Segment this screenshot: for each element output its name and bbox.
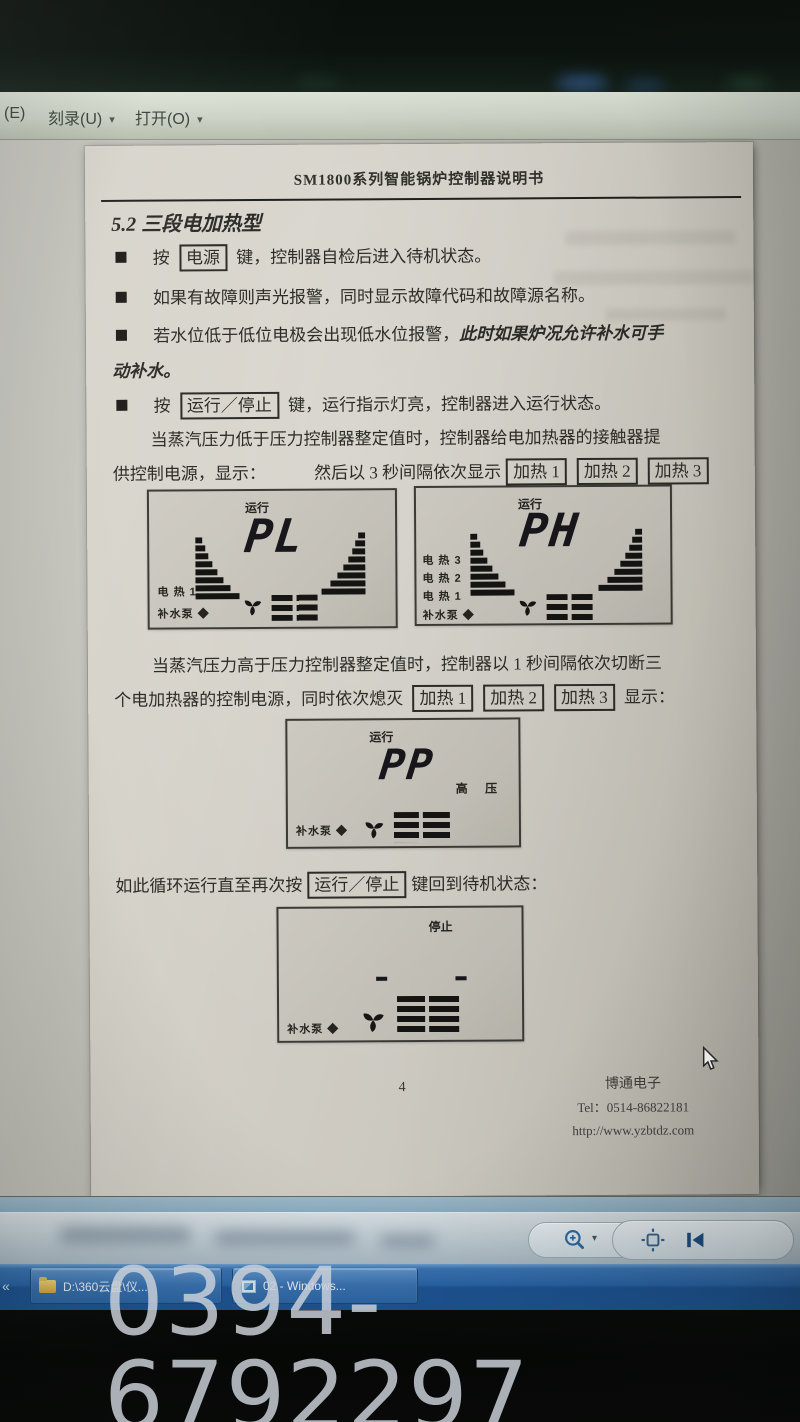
heat2-key-label: 加热 2 (577, 458, 638, 485)
heat3-key-label: 加热 3 (647, 457, 708, 484)
fan-icon (360, 814, 388, 842)
zoom-magnifier-icon[interactable] (562, 1227, 588, 1253)
menu-email[interactable]: (E) (4, 105, 25, 123)
bullet-waterlevel-line1: 若水位低于低位电极会出现低水位报警，此时如果炉况允许补水可手 (116, 319, 663, 347)
runstop-key-label: 运行／停止 (180, 392, 279, 420)
bullet-waterlevel-line2: 动补水。 (112, 356, 180, 381)
viewer-bottom-margin (0, 1196, 800, 1212)
heater3-indicator-label: 电 热 3 (422, 552, 461, 568)
lcd-panel-pl: 运行 PL 电 热 1 补水泵 ◆ (147, 488, 398, 630)
bullet-square-icon (116, 292, 127, 303)
viewer-canvas: SM1800系列智能锅炉控制器说明书 5.2 三段电加热型 按 电源 键，控制器… (0, 140, 800, 1212)
feedpump-indicator-label: 补水泵 ◆ (287, 1021, 339, 1037)
fan-icon (240, 593, 266, 619)
stop-status-label: 停止 (429, 918, 453, 935)
lcd-panel-pp: 运行 PP 高 压 补水泵 ◆ (285, 717, 521, 848)
mouse-cursor-icon (700, 1046, 722, 1072)
zoom-dropdown-caret-icon[interactable]: ▾ (592, 1233, 597, 1244)
folder-icon (39, 1280, 56, 1293)
bullet-square-icon (115, 252, 126, 263)
lcd-value-pl: PL (242, 513, 307, 559)
heater2-indicator-label: 电 热 2 (422, 570, 461, 586)
power-key-label: 电源 (179, 244, 227, 271)
screen-glare (556, 76, 608, 90)
heater1-indicator-label: 电 热 1 (157, 583, 196, 599)
section-title: 5.2 三段电加热型 (111, 207, 261, 237)
fan-icon (515, 593, 541, 619)
bullet-power: 按 电源 键，控制器自检后进入待机状态。 (115, 242, 491, 272)
menu-burn[interactable]: 刻录(U)▾ (48, 105, 115, 129)
photographed-monitor: (E) 刻录(U)▾ 打开(O)▾ SM1800系列智能锅炉控制器说明书 5.2… (0, 0, 800, 1422)
header-rule (101, 196, 741, 202)
document-page: SM1800系列智能锅炉控制器说明书 5.2 三段电加热型 按 电源 键，控制器… (85, 142, 759, 1198)
heat1-key-label: 加热 1 (506, 458, 567, 485)
top-bezel (0, 0, 800, 92)
page-bleedthrough (565, 230, 735, 245)
heater1-indicator-label: 电 热 1 (422, 588, 461, 604)
watermark-phone-number: 0394-6792297 (104, 1256, 800, 1422)
bargraph-right-icon (598, 529, 642, 593)
doc-header-title: SM1800系列智能锅炉控制器说明书 (85, 166, 753, 191)
high-pressure-label: 高 压 (456, 780, 504, 797)
screen-glare (295, 78, 341, 90)
heat3-key-label: 加热 3 (554, 684, 615, 711)
para-high-line2: 个电加热器的控制电源，同时依次熄灭 加热 1加热 2加热 3 显示： (114, 682, 675, 713)
lcd-value-pp: PP (377, 744, 436, 786)
heat1-key-label: 加热 1 (412, 685, 473, 712)
company-tel: Tel：0514-86822181 (521, 1095, 746, 1119)
pump-icon (394, 812, 450, 842)
feedpump-indicator-label: 补水泵 ◆ (296, 822, 348, 838)
reflection-smudge (380, 1235, 435, 1247)
actual-size-icon[interactable] (640, 1227, 666, 1253)
para-low-line2: 供控制电源，显示： 然后以 3 秒间隔依次显示加热 1加热 2加热 3 (113, 456, 714, 488)
chevron-down-icon: ▾ (197, 114, 203, 126)
para-high-line1: 当蒸汽压力高于压力控制器整定值时，控制器以 1 秒间隔依次切断三 (152, 649, 662, 677)
runstop-key-label: 运行／停止 (307, 871, 406, 899)
viewer-menubar: (E) 刻录(U)▾ 打开(O)▾ (0, 92, 800, 140)
reflection-smudge (215, 1231, 355, 1245)
bargraph-right-icon (321, 532, 365, 596)
previous-image-icon[interactable] (683, 1228, 707, 1252)
cycle-line: 如此循环运行直至再次按运行／停止键回到待机状态： (115, 869, 547, 900)
company-footer: 博通电子 Tel：0514-86822181 http://www.yzbtdz… (520, 1072, 745, 1142)
screen-glare (625, 80, 665, 92)
menu-open[interactable]: 打开(O)▾ (135, 105, 203, 129)
chevron-down-icon: ▾ (109, 114, 115, 126)
bargraph-left-icon (470, 533, 514, 597)
pump-icon (547, 594, 593, 620)
bullet-square-icon (116, 330, 127, 341)
company-url[interactable]: http://www.yzbtdz.com (521, 1118, 746, 1142)
pump-icon (397, 996, 459, 1034)
company-name: 博通电子 (520, 1072, 745, 1096)
pump-icon (272, 595, 318, 621)
fan-icon (357, 1004, 389, 1036)
screen-glare (726, 78, 770, 90)
lcd-value-stop: - - (371, 963, 490, 993)
bullet-fault: 如果有故障则声光报警，同时显示故障代码和故障源名称。 (116, 281, 595, 309)
page-number: 4 (399, 1080, 406, 1096)
para-low-line1: 当蒸汽压力低于压力控制器整定值时，控制器给电加热器的接触器提 (151, 423, 661, 451)
lcd-panel-stop: 停止 - - 补水泵 ◆ (276, 905, 524, 1043)
bullet-runstop: 按 运行／停止 键，运行指示灯亮，控制器进入运行状态。 (116, 389, 611, 420)
bargraph-left-icon (195, 537, 239, 601)
lcd-panel-ph: 运行 PH 电 热 3 电 热 2 电 热 1 补水泵 ◆ (414, 484, 673, 626)
lcd-value-ph: PH (517, 507, 582, 553)
bullet-square-icon (116, 400, 127, 411)
feedpump-indicator-label: 补水泵 ◆ (423, 607, 475, 623)
reflection-smudge (60, 1227, 190, 1243)
taskbar-edge-icon[interactable]: « (2, 1278, 10, 1294)
heat2-key-label: 加热 2 (483, 684, 544, 711)
feedpump-indicator-label: 补水泵 ◆ (158, 605, 210, 621)
